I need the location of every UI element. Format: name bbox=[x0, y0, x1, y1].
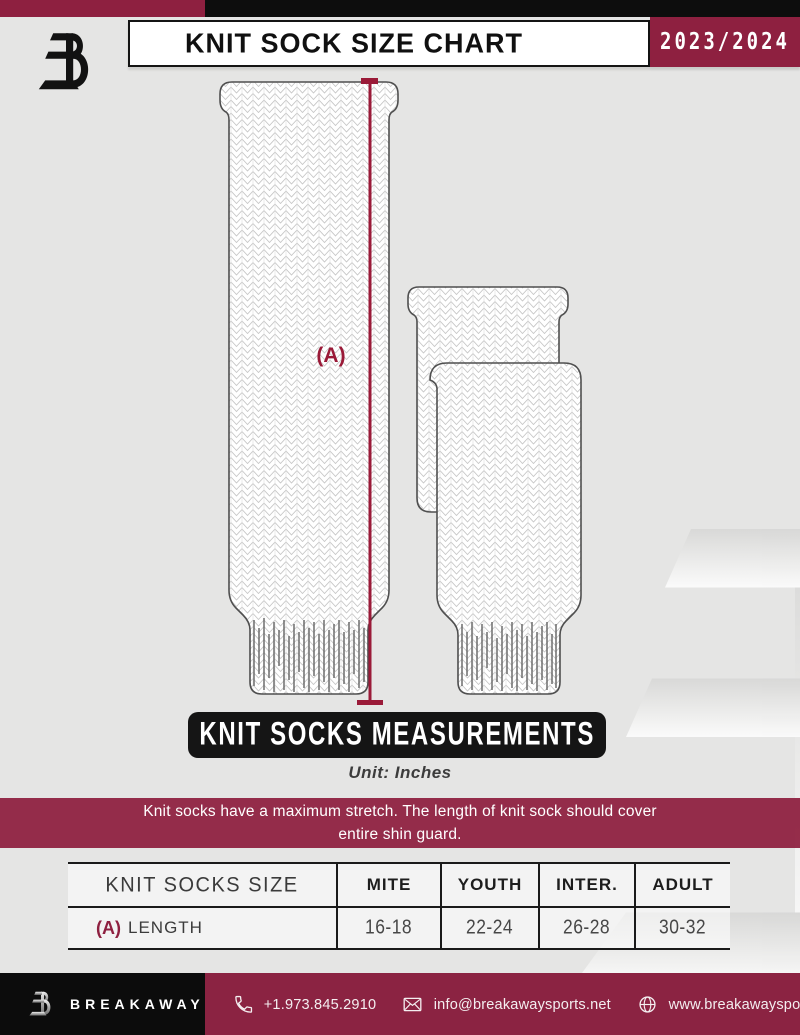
table-value-adult: 30-32 bbox=[634, 908, 730, 948]
breakaway-b-logo bbox=[26, 22, 106, 102]
dimension-a-label: (A) bbox=[316, 344, 345, 367]
email-icon bbox=[402, 994, 423, 1015]
footer: BREAKAWAY +1.973.845.2910 info@breakaway… bbox=[0, 973, 800, 1035]
season-label: 2023/2024 bbox=[660, 29, 790, 55]
knit-socks-illustration: (A) bbox=[150, 75, 620, 715]
footer-website-url[interactable]: www.breakawaysports.net bbox=[669, 996, 800, 1013]
table-header-mite: MITE bbox=[336, 864, 440, 908]
table-header-size: KNIT SOCKS SIZE bbox=[68, 864, 336, 908]
globe-icon bbox=[637, 994, 658, 1015]
note-line-1: Knit socks have a maximum stretch. The l… bbox=[143, 800, 657, 823]
page-title: KNIT SOCK SIZE CHART bbox=[185, 27, 523, 59]
table-value-youth: 22-24 bbox=[440, 908, 538, 948]
table-header-adult: ADULT bbox=[634, 864, 730, 908]
table-header-inter: INTER. bbox=[538, 864, 634, 908]
unit-label: Unit: Inches bbox=[0, 763, 800, 783]
table-row-length-label: (A) LENGTH bbox=[68, 908, 336, 948]
table-value-mite: 16-18 bbox=[336, 908, 440, 948]
measurements-banner: KNIT SOCKS MEASUREMENTS bbox=[188, 712, 606, 758]
size-table: KNIT SOCKS SIZE MITE YOUTH INTER. ADULT … bbox=[68, 862, 730, 950]
phone-icon bbox=[233, 994, 254, 1015]
table-value-inter: 26-28 bbox=[538, 908, 634, 948]
title-box: KNIT SOCK SIZE CHART bbox=[128, 20, 650, 67]
top-accent-strip-maroon bbox=[0, 0, 205, 17]
note-line-2: entire shin guard. bbox=[338, 823, 461, 846]
footer-brand-name: BREAKAWAY bbox=[70, 996, 205, 1012]
footer-brand-block: BREAKAWAY bbox=[0, 973, 205, 1035]
footer-phone-number[interactable]: +1.973.845.2910 bbox=[263, 996, 376, 1013]
footer-email-address[interactable]: info@breakawaysports.net bbox=[434, 996, 611, 1013]
footer-contact-bar: +1.973.845.2910 info@breakawaysports.net… bbox=[205, 973, 800, 1035]
footer-email: info@breakawaysports.net bbox=[402, 994, 614, 1015]
stretch-note-banner: Knit socks have a maximum stretch. The l… bbox=[0, 798, 800, 848]
breakaway-b-logo-footer bbox=[24, 985, 58, 1023]
table-header-youth: YOUTH bbox=[440, 864, 538, 908]
season-badge: 2023/2024 bbox=[650, 17, 800, 67]
footer-website: www.breakawaysports.net bbox=[637, 994, 800, 1015]
size-chart-page: KNIT SOCK SIZE CHART 2023/2024 bbox=[0, 0, 800, 1035]
dimension-a-ref: (A) bbox=[96, 918, 121, 939]
top-accent-strip-black bbox=[205, 0, 800, 17]
measurements-banner-title: KNIT SOCKS MEASUREMENTS bbox=[199, 717, 594, 754]
footer-phone: +1.973.845.2910 bbox=[233, 994, 378, 1015]
sock-front bbox=[430, 363, 581, 694]
